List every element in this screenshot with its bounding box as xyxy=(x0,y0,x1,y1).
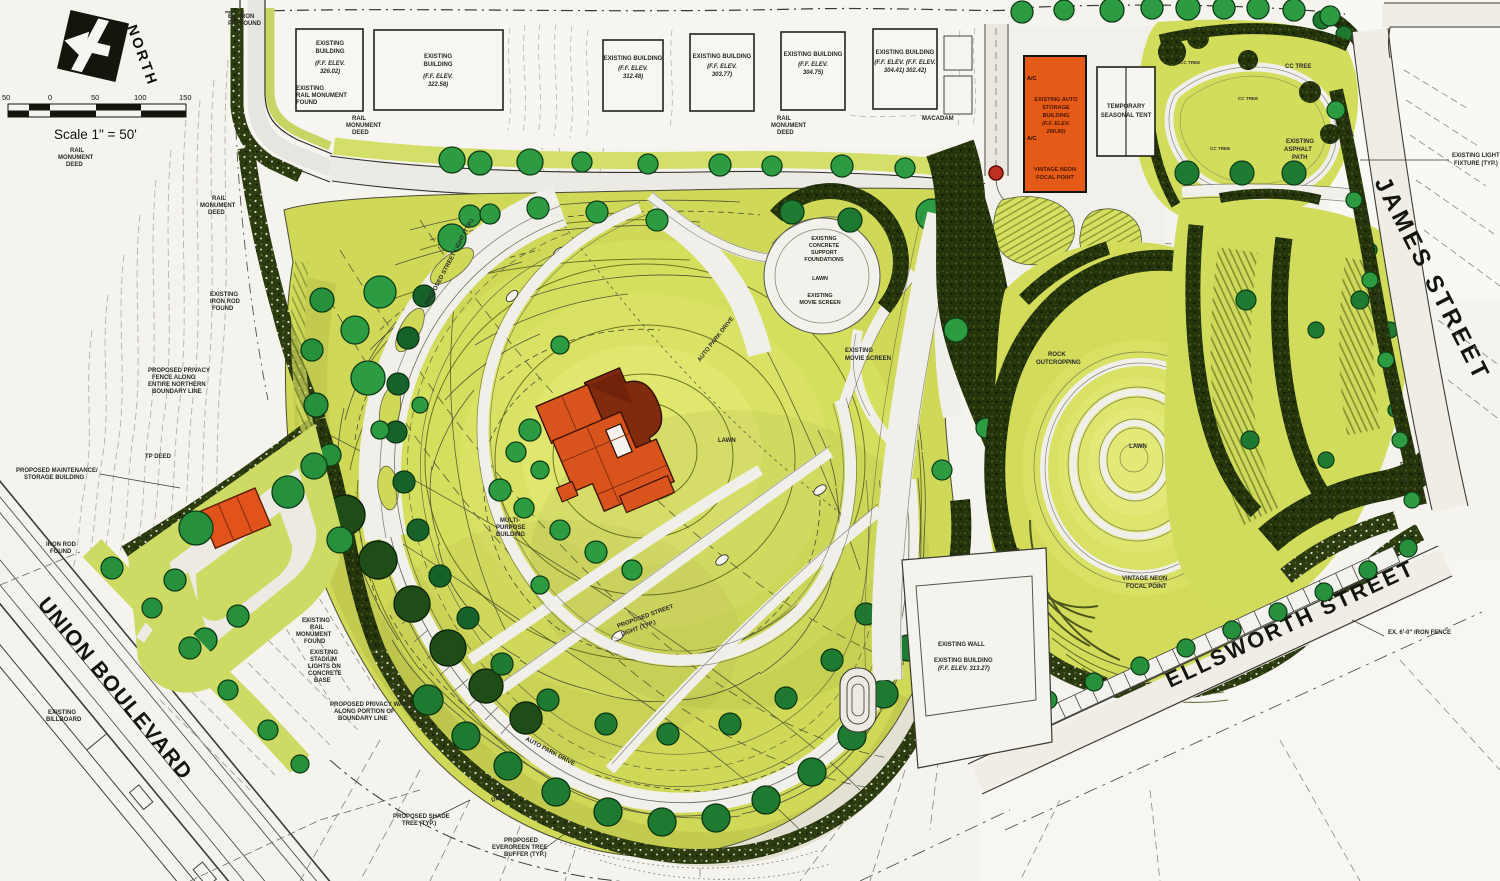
svg-text:326.02): 326.02) xyxy=(320,69,340,75)
svg-text:FOUND: FOUND xyxy=(50,549,72,555)
svg-text:MONUMENT: MONUMENT xyxy=(58,155,94,161)
svg-text:50: 50 xyxy=(2,93,10,102)
svg-text:0: 0 xyxy=(48,93,52,102)
svg-text:BASE: BASE xyxy=(314,678,331,684)
svg-text:290.80): 290.80) xyxy=(1046,129,1066,135)
svg-text:TREE (TYP.): TREE (TYP.) xyxy=(402,821,436,827)
svg-text:EXISTING BUILDING: EXISTING BUILDING xyxy=(604,56,663,62)
svg-text:DEED: DEED xyxy=(352,130,369,136)
svg-text:(F.F. ELEV. 313.27): (F.F. ELEV. 313.27) xyxy=(938,666,990,672)
svg-text:TP DEED: TP DEED xyxy=(145,454,172,460)
svg-text:(F.F. ELEV.: (F.F. ELEV. xyxy=(618,66,648,72)
svg-text:312.48): 312.48) xyxy=(623,74,643,80)
svg-text:LAWN: LAWN xyxy=(1129,444,1147,450)
svg-text:PURPOSE: PURPOSE xyxy=(496,525,525,531)
svg-text:DEED: DEED xyxy=(208,210,225,216)
svg-text:CC TREE: CC TREE xyxy=(1180,60,1200,65)
svg-text:A/C: A/C xyxy=(1027,76,1037,82)
svg-text:BUFFER (TYP.): BUFFER (TYP.) xyxy=(504,852,547,858)
svg-text:Scale 1" = 50': Scale 1" = 50' xyxy=(54,127,137,142)
svg-text:EXISTING: EXISTING xyxy=(316,41,344,47)
svg-text:OUTCROPPING: OUTCROPPING xyxy=(1036,360,1081,366)
svg-text:FOUNDATIONS: FOUNDATIONS xyxy=(804,257,844,263)
svg-text:VINTAGE NEON: VINTAGE NEON xyxy=(1034,167,1076,173)
svg-text:MOVIE SCREEN: MOVIE SCREEN xyxy=(799,300,840,306)
svg-text:CC TREE: CC TREE xyxy=(1285,64,1311,70)
svg-text:EX. 6'-0" IRON FENCE: EX. 6'-0" IRON FENCE xyxy=(1388,630,1451,636)
svg-text:BILLBOARD: BILLBOARD xyxy=(46,717,82,723)
svg-text:STADIUM: STADIUM xyxy=(310,657,337,663)
svg-text:(F.F. ELEV.: (F.F. ELEV. xyxy=(1042,121,1070,127)
svg-text:CC TREE: CC TREE xyxy=(1210,146,1230,151)
svg-text:RAIL: RAIL xyxy=(310,625,324,631)
svg-text:FOCAL POINT: FOCAL POINT xyxy=(1036,175,1074,181)
svg-text:EXISTING BUILDING: EXISTING BUILDING xyxy=(784,52,843,58)
svg-text:303.77): 303.77) xyxy=(712,72,732,78)
svg-text:MONUMENT: MONUMENT xyxy=(200,203,236,209)
svg-text:ROCK: ROCK xyxy=(1048,352,1066,358)
svg-text:RAIL: RAIL xyxy=(777,116,791,122)
svg-text:322.58): 322.58) xyxy=(428,82,448,88)
svg-text:EXISTING: EXISTING xyxy=(48,710,76,716)
svg-text:FENCE ALONG: FENCE ALONG xyxy=(152,375,196,381)
svg-text:ENTIRE NORTHERN: ENTIRE NORTHERN xyxy=(148,382,206,388)
svg-text:A/C: A/C xyxy=(1027,136,1037,142)
svg-text:PROPOSED: PROPOSED xyxy=(504,838,539,844)
svg-text:RAIL MONUMENT: RAIL MONUMENT xyxy=(296,93,347,99)
svg-text:EXISTING: EXISTING xyxy=(302,618,330,624)
svg-text:EXISTING BUILDING: EXISTING BUILDING xyxy=(876,50,935,56)
svg-text:BOUNDARY LINE: BOUNDARY LINE xyxy=(152,389,202,395)
svg-text:EXISTING BUILDING: EXISTING BUILDING xyxy=(693,54,752,60)
svg-text:ALONG PORTION OF: ALONG PORTION OF xyxy=(334,709,395,715)
svg-text:MACADAM: MACADAM xyxy=(922,116,954,122)
svg-text:150: 150 xyxy=(179,93,192,102)
svg-text:304.75): 304.75) xyxy=(803,70,823,76)
svg-text:DEED: DEED xyxy=(777,130,794,136)
svg-text:CONCRETE: CONCRETE xyxy=(308,671,342,677)
svg-text:TEMPORARY: TEMPORARY xyxy=(1107,104,1145,110)
svg-text:PATH: PATH xyxy=(1292,155,1307,161)
svg-text:STORAGE BUILDING: STORAGE BUILDING xyxy=(24,475,85,481)
svg-text:PIN FOUND: PIN FOUND xyxy=(228,21,262,27)
svg-text:BUILDING: BUILDING xyxy=(1042,113,1069,119)
svg-text:EXISTING AUTO: EXISTING AUTO xyxy=(1034,97,1078,103)
svg-text:(F.F. ELEV.: (F.F. ELEV. xyxy=(315,61,345,67)
svg-text:BOUNDARY LINE: BOUNDARY LINE xyxy=(338,716,388,722)
svg-text:FOUND: FOUND xyxy=(212,306,234,312)
svg-text:MONUMENT: MONUMENT xyxy=(771,123,807,129)
svg-text:EXISTING: EXISTING xyxy=(424,54,452,60)
svg-text:EXISTING: EXISTING xyxy=(1286,139,1314,145)
svg-text:RAIL: RAIL xyxy=(352,116,366,122)
svg-text:STORAGE: STORAGE xyxy=(1042,105,1070,111)
svg-text:MULTI-: MULTI- xyxy=(500,518,520,524)
svg-text:FOUND: FOUND xyxy=(304,639,326,645)
svg-text:LAWN: LAWN xyxy=(718,438,736,444)
svg-text:IRON ROD: IRON ROD xyxy=(210,299,241,305)
svg-text:(F.F. ELEV.: (F.F. ELEV. xyxy=(423,74,453,80)
svg-text:LIGHTS ON: LIGHTS ON xyxy=(308,664,341,670)
svg-text:100: 100 xyxy=(134,93,147,102)
svg-text:(F.F. ELEV.: (F.F. ELEV. xyxy=(707,64,737,70)
svg-text:EXISTING: EXISTING xyxy=(845,348,873,354)
svg-text:LAWN: LAWN xyxy=(812,276,828,282)
svg-text:RAIL: RAIL xyxy=(212,196,226,202)
svg-text:MOVIE SCREEN: MOVIE SCREEN xyxy=(845,356,891,362)
svg-text:ASPHALT: ASPHALT xyxy=(1284,147,1312,153)
svg-text:EXISTING BUILDING: EXISTING BUILDING xyxy=(934,658,993,664)
svg-text:FOUND: FOUND xyxy=(296,100,318,106)
svg-text:PROPOSED MAINTENANCE/: PROPOSED MAINTENANCE/ xyxy=(16,468,98,474)
svg-text:EXISTING WALL: EXISTING WALL xyxy=(938,642,985,648)
svg-text:(F.F. ELEV. (F.F. ELEV.: (F.F. ELEV. (F.F. ELEV. xyxy=(874,60,936,66)
svg-text:FOCAL POINT: FOCAL POINT xyxy=(1126,584,1167,590)
svg-text:CONCRETE: CONCRETE xyxy=(809,243,840,249)
svg-text:EXISTING: EXISTING xyxy=(296,86,324,92)
svg-text:BUILDING: BUILDING xyxy=(316,49,345,55)
svg-text:EXISTING: EXISTING xyxy=(210,292,238,298)
svg-text:304.41) 302.42): 304.41) 302.42) xyxy=(884,68,926,74)
svg-text:EVERGREEN TREE: EVERGREEN TREE xyxy=(492,845,547,851)
svg-text:BUILDING: BUILDING xyxy=(496,532,525,538)
svg-text:EXISTING: EXISTING xyxy=(310,650,338,656)
svg-text:PROPOSED SHADE: PROPOSED SHADE xyxy=(393,814,450,820)
svg-text:PROPOSED PRIVACY WALL: PROPOSED PRIVACY WALL xyxy=(330,702,411,708)
svg-text:VINTAGE NEON: VINTAGE NEON xyxy=(1122,576,1167,582)
svg-text:50: 50 xyxy=(91,93,99,102)
svg-text:EXISTING LIGHT: EXISTING LIGHT xyxy=(1452,153,1500,159)
svg-text:MONUMENT: MONUMENT xyxy=(346,123,382,129)
svg-text:(F.F. ELEV.: (F.F. ELEV. xyxy=(798,62,828,68)
svg-text:PROPOSED PRIVACY: PROPOSED PRIVACY xyxy=(148,368,210,374)
svg-text:IRON ROD: IRON ROD xyxy=(46,542,77,548)
svg-text:EX. IRON: EX. IRON xyxy=(228,14,254,20)
svg-text:MONUMENT: MONUMENT xyxy=(296,632,332,638)
svg-text:SEASONAL TENT: SEASONAL TENT xyxy=(1101,113,1152,119)
svg-text:CC TREE: CC TREE xyxy=(1238,96,1258,101)
svg-text:DEED: DEED xyxy=(66,162,83,168)
svg-text:SUPPORT: SUPPORT xyxy=(811,250,838,256)
svg-text:RAIL: RAIL xyxy=(70,148,84,154)
svg-text:EXISTING: EXISTING xyxy=(811,236,836,242)
svg-text:EXISTING: EXISTING xyxy=(807,293,832,299)
svg-text:BUILDING: BUILDING xyxy=(424,62,453,68)
svg-text:FIXTURE (TYP.): FIXTURE (TYP.) xyxy=(1454,161,1498,167)
